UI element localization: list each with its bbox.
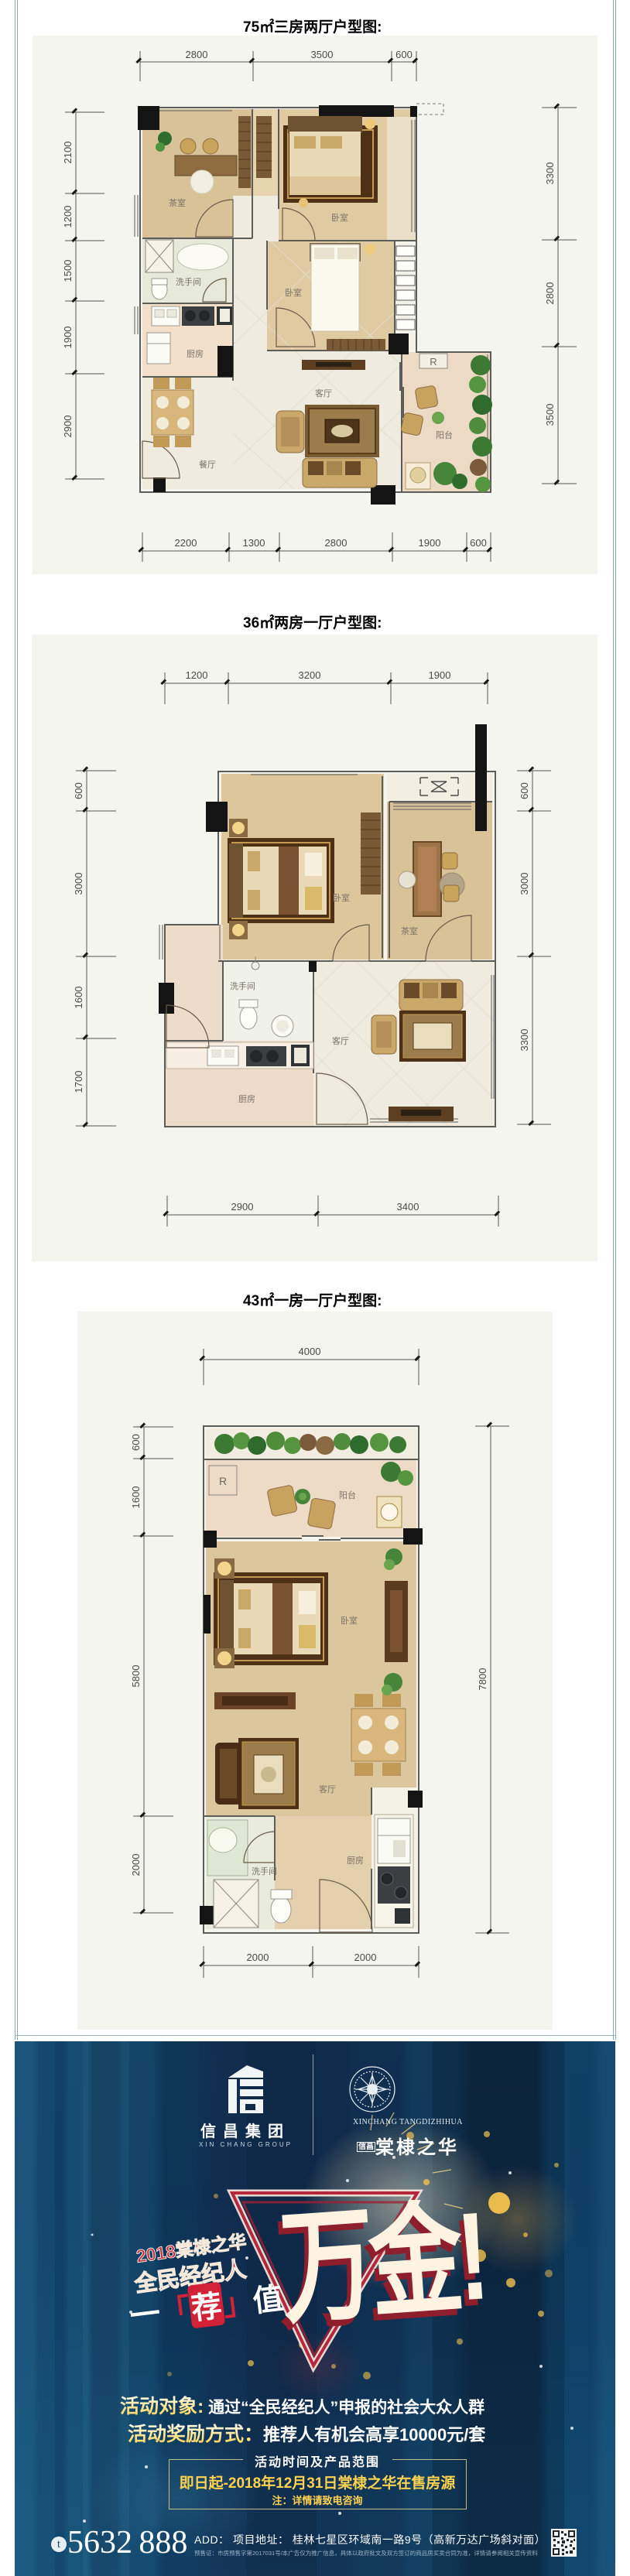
svg-text:3200: 3200: [299, 669, 321, 681]
svg-text:洗手间: 洗手间: [176, 276, 201, 287]
svg-text:4000: 4000: [299, 1346, 321, 1357]
svg-text:卧室: 卧室: [285, 287, 302, 298]
svg-text:1500: 1500: [62, 260, 74, 282]
svg-text:厨房: 厨房: [347, 1856, 364, 1866]
svg-text:厨房: 厨房: [238, 1094, 255, 1104]
svg-text:茶室: 茶室: [169, 197, 186, 208]
svg-text:1300: 1300: [243, 537, 265, 549]
svg-text:1900: 1900: [62, 327, 74, 349]
svg-text:1600: 1600: [73, 987, 84, 1009]
svg-text:1900: 1900: [429, 669, 451, 681]
svg-text:3000: 3000: [519, 873, 530, 895]
svg-text:3300: 3300: [519, 1029, 530, 1052]
svg-text:2200: 2200: [175, 537, 197, 549]
svg-text:阳台: 阳台: [339, 1490, 356, 1500]
svg-text:3500: 3500: [311, 49, 334, 60]
svg-text:3400: 3400: [397, 1201, 419, 1213]
svg-text:洗手间: 洗手间: [252, 1866, 277, 1876]
svg-text:2100: 2100: [62, 142, 74, 164]
svg-text:餐厅: 餐厅: [199, 459, 216, 470]
svg-text:2900: 2900: [231, 1201, 254, 1213]
svg-text:2900: 2900: [62, 416, 74, 438]
svg-text:阳台: 阳台: [436, 429, 453, 440]
svg-text:2000: 2000: [354, 1952, 377, 1963]
svg-text:7800: 7800: [477, 1668, 488, 1691]
svg-text:600: 600: [519, 782, 530, 799]
svg-text:卧室: 卧室: [341, 1615, 358, 1626]
svg-text:R: R: [219, 1475, 227, 1487]
svg-text:2800: 2800: [186, 49, 208, 60]
svg-text:客厅: 客厅: [332, 1035, 349, 1046]
svg-text:600: 600: [395, 49, 413, 60]
svg-text:厨房: 厨房: [187, 349, 204, 359]
svg-text:600: 600: [130, 1434, 142, 1451]
svg-text:1700: 1700: [73, 1071, 84, 1093]
svg-text:2800: 2800: [544, 282, 556, 305]
svg-text:600: 600: [470, 537, 487, 549]
svg-text:3000: 3000: [73, 873, 84, 895]
svg-text:3300: 3300: [544, 162, 556, 185]
svg-text:600: 600: [73, 782, 84, 799]
svg-text:1600: 1600: [130, 1486, 142, 1509]
svg-text:1900: 1900: [419, 537, 441, 549]
svg-text:2800: 2800: [325, 537, 348, 549]
svg-text:1200: 1200: [62, 206, 74, 228]
svg-text:1200: 1200: [186, 669, 208, 681]
svg-text:2000: 2000: [130, 1854, 142, 1876]
svg-text:卧室: 卧室: [333, 892, 350, 903]
svg-text:客厅: 客厅: [315, 388, 332, 399]
svg-text:万金!: 万金!: [276, 2200, 488, 2339]
svg-text:5800: 5800: [130, 1665, 142, 1688]
svg-text:3500: 3500: [544, 404, 556, 426]
svg-text:洗手间: 洗手间: [230, 980, 255, 991]
svg-text:茶室: 茶室: [401, 925, 418, 936]
svg-text:R: R: [430, 356, 437, 368]
svg-text:客厅: 客厅: [319, 1784, 336, 1794]
svg-text:卧室: 卧室: [331, 212, 348, 223]
svg-text:2000: 2000: [247, 1952, 269, 1963]
